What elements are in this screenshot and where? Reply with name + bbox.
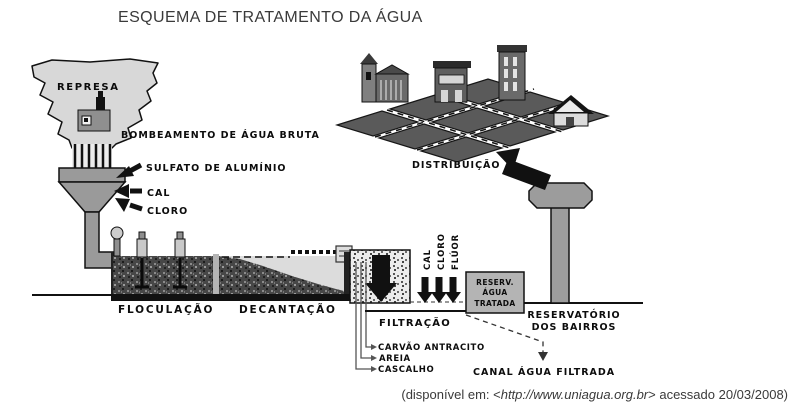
treated-water-box: RESERV. ÁGUA TRATADA xyxy=(466,272,524,313)
source-suffix: > acessado 20/03/2008) xyxy=(648,387,788,402)
bombeamento-label: BOMBEAMENTO DE ÁGUA BRUTA xyxy=(121,129,320,141)
filtracao-label: FILTRAÇÃO xyxy=(379,316,451,329)
cloro-dosing-arrow-icon xyxy=(431,277,447,303)
source-note: (disponível em: <http://www.uniagua.org.… xyxy=(401,387,788,402)
tank-base-line xyxy=(111,294,350,301)
areia-label: AREIA xyxy=(379,354,411,364)
channel-cloro-label: CLORO xyxy=(437,233,447,270)
floculacao-label: FLOCULAÇÃO xyxy=(118,303,214,316)
channel-cal-label: CAL xyxy=(423,249,433,270)
reservatorio-label-line2: DOS BAIRROS xyxy=(532,322,617,333)
water-treatment-diagram: REPRESA BOMBEAMEN xyxy=(0,0,791,412)
carvao-label: CARVÃO ANTRACITO xyxy=(378,342,485,353)
city-map xyxy=(337,45,608,162)
canal-label: CANAL ÁGUA FILTRADA xyxy=(473,366,615,378)
distribuicao-label: DISTRIBUIÇÃO xyxy=(412,160,500,171)
source-prefix: (disponível em: < xyxy=(401,387,500,402)
fluor-dosing-arrow-icon xyxy=(445,277,461,303)
represa-group: REPRESA xyxy=(32,59,158,172)
channel-fluor-label: FLÚOR xyxy=(449,234,461,270)
source-url: http://www.uniagua.org.br xyxy=(501,387,648,402)
reservatorio-label-line1: RESERVATÓRIO xyxy=(527,309,620,321)
sulfato-label: SULFATO DE ALUMÍNIO xyxy=(146,162,287,174)
water-tower-icon xyxy=(529,183,592,303)
decantacao-label: DECANTAÇÃO xyxy=(239,303,337,316)
represa-label: REPRESA xyxy=(57,82,120,93)
church-icon xyxy=(360,53,408,102)
water-treatment-page: ESQUEMA DE TRATAMENTO DA ÁGUA xyxy=(0,0,791,412)
distribution-arrow-icon xyxy=(496,148,551,190)
cal-label: CAL xyxy=(147,188,170,199)
decantation-tank xyxy=(219,246,352,294)
flocculation-tank xyxy=(111,227,219,294)
cascalho-label: CASCALHO xyxy=(378,365,434,375)
cal-dosing-arrow-icon xyxy=(417,277,433,303)
treated-box-line1: RESERV. xyxy=(476,278,514,287)
treated-box-line2: ÁGUA xyxy=(482,288,507,297)
office-tower-icon xyxy=(497,45,527,100)
cloro-arrow-icon xyxy=(115,198,142,212)
treated-box-line3: TRATADA xyxy=(474,299,515,308)
commercial-building-icon xyxy=(433,61,471,102)
cloro-label: CLORO xyxy=(147,206,188,217)
